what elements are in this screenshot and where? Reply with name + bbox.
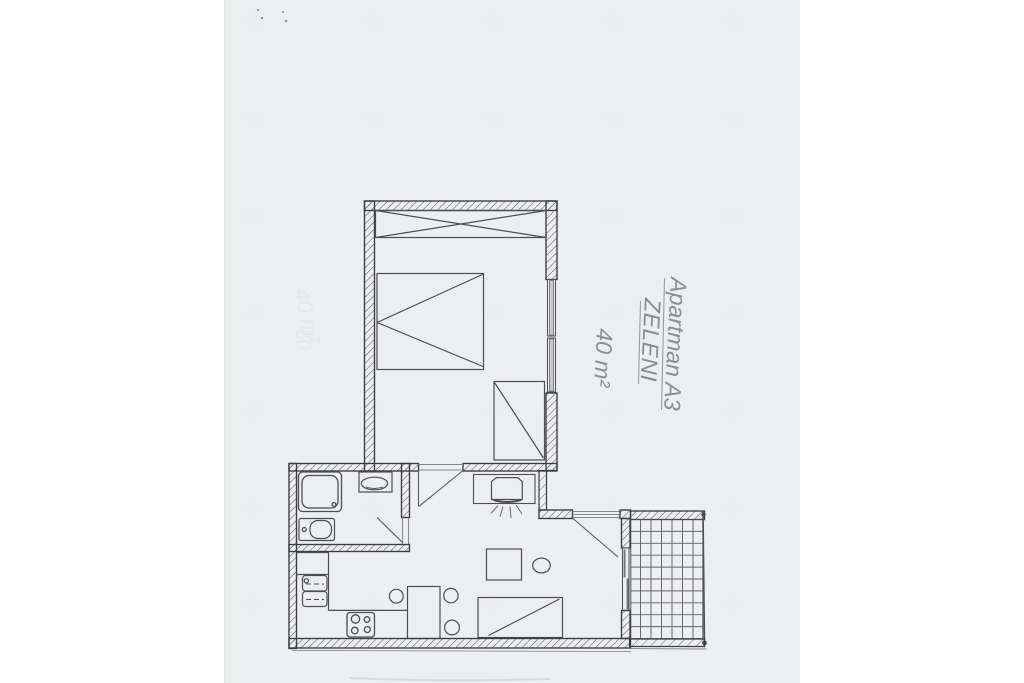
svg-text:60: 60 (290, 327, 314, 352)
svg-text:40 m²: 40 m² (589, 328, 618, 389)
